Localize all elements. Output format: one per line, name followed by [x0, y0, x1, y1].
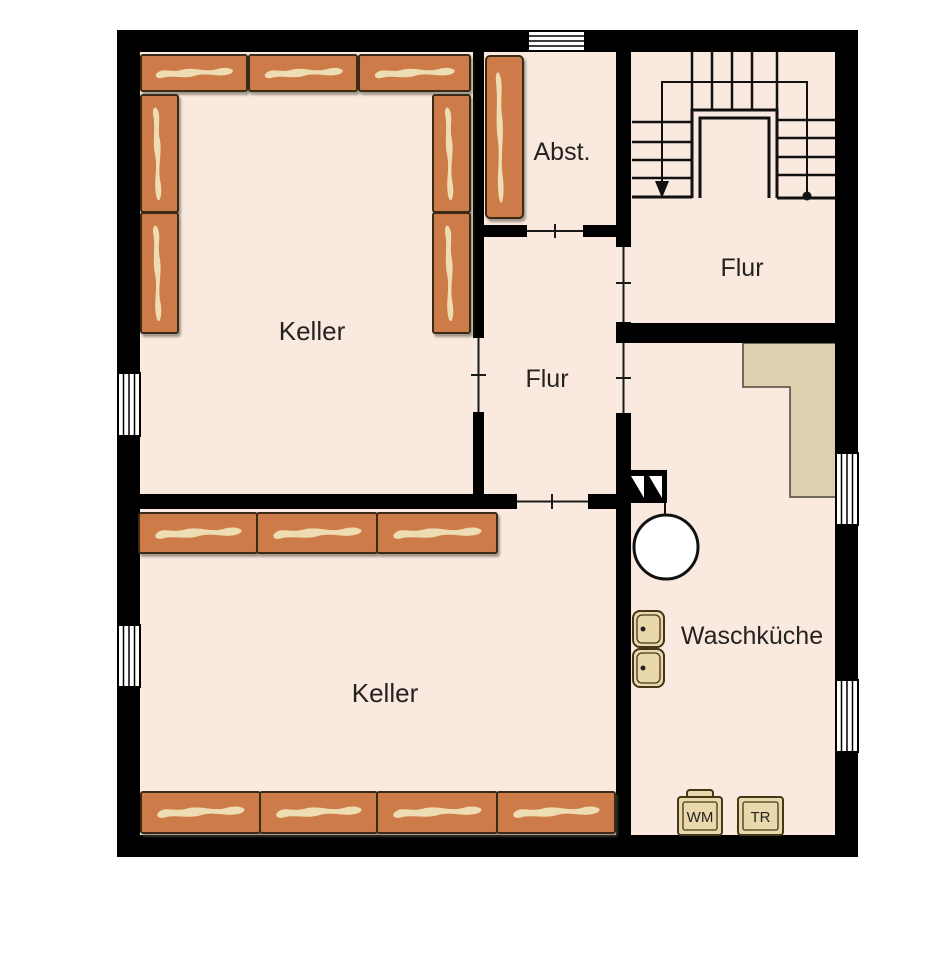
storage-shelf-icon: [497, 792, 615, 833]
outer-wall-top: [117, 30, 858, 52]
storage-shelf-icon: [141, 792, 260, 833]
window-icon: [528, 31, 585, 51]
stair-start-dot-icon: [803, 192, 812, 201]
storage-shelf-icon: [141, 213, 178, 333]
window-icon: [118, 373, 140, 436]
room-label-flur-upper: Flur: [720, 254, 763, 282]
washing-machine: WM: [678, 790, 722, 835]
storage-shelf-icon: [377, 792, 497, 833]
floor-plan-page: WM TR Keller Abst. Flur Flur Keller Wasc…: [0, 0, 926, 976]
window-icon: [836, 453, 858, 525]
boiler-tank-icon: [634, 515, 698, 579]
dryer: TR: [738, 797, 783, 835]
washing-machine-label: WM: [687, 809, 714, 826]
laundry-sink-icon: [633, 649, 664, 687]
room-label-waschkueche: Waschküche: [681, 622, 823, 650]
laundry-sink-icon: [633, 611, 664, 647]
wall-flur-waschkueche: [631, 323, 858, 343]
storage-shelf-icon: [433, 213, 470, 333]
storage-shelf-icon: [486, 56, 523, 218]
outer-wall-left: [117, 30, 140, 857]
wall-abst-stairs: [616, 52, 631, 247]
wall-flur-mid-segment: [616, 322, 631, 343]
wall-abst-bottom-left: [484, 225, 527, 237]
storage-shelf-icon: [249, 55, 357, 91]
wall-keller-abst: [473, 52, 484, 338]
outer-wall-bottom: [117, 835, 858, 857]
storage-shelf-icon: [377, 513, 497, 553]
storage-shelf-icon: [141, 95, 178, 212]
window-icon: [118, 625, 140, 687]
room-label-flur-middle: Flur: [525, 365, 568, 393]
floor-plan-drawing: WM TR Keller Abst. Flur Flur Keller Wasc…: [0, 0, 926, 976]
wall-keller-divider: [140, 494, 517, 509]
room-label-keller-lower: Keller: [352, 678, 419, 708]
storage-shelf-icon: [139, 513, 257, 553]
storage-shelf-icon: [257, 513, 377, 553]
room-label-keller-upper: Keller: [279, 316, 346, 346]
window-icon: [836, 680, 858, 752]
storage-shelf-icon: [141, 55, 247, 91]
storage-shelf-icon: [260, 792, 377, 833]
dryer-label: TR: [751, 809, 771, 826]
storage-shelf-icon: [359, 55, 470, 91]
storage-shelf-icon: [433, 95, 470, 212]
room-label-abstellraum: Abst.: [534, 138, 591, 166]
